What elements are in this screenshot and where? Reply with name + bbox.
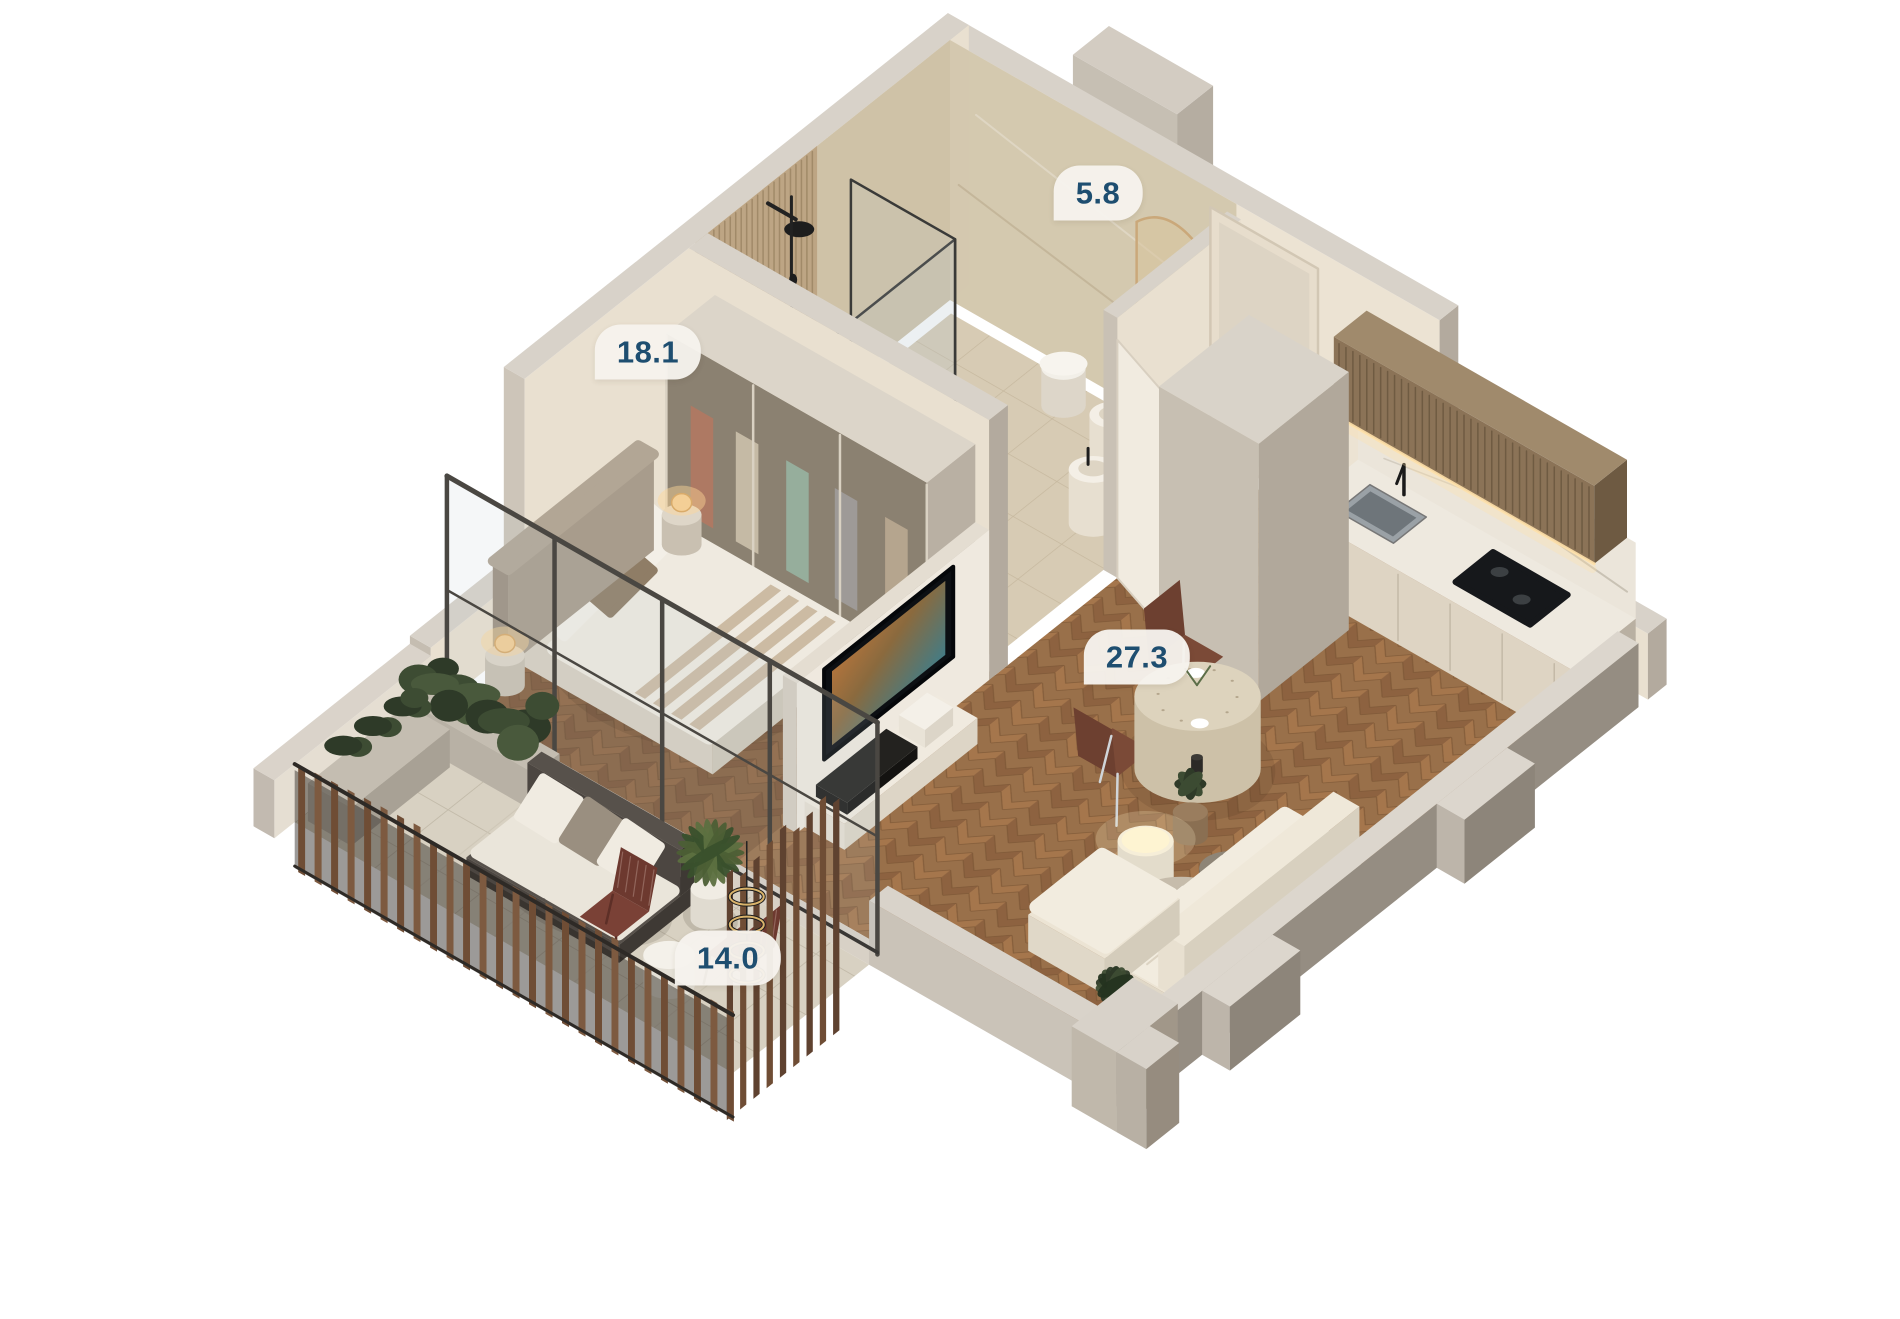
railing-slat bbox=[430, 844, 437, 952]
stone-speckle bbox=[1213, 669, 1216, 671]
area-label-bedroom: 18.1 bbox=[595, 325, 701, 380]
stone-speckle bbox=[1225, 711, 1228, 713]
corner-screen-slat bbox=[807, 812, 813, 1057]
burner bbox=[1513, 595, 1531, 605]
stone-speckle bbox=[1180, 720, 1183, 722]
railing-slat bbox=[397, 815, 404, 933]
railing-slat bbox=[546, 903, 553, 1018]
planter-foliage bbox=[324, 736, 362, 756]
corner-pillar-step-sw bbox=[1117, 1052, 1147, 1149]
railing-slat bbox=[727, 1008, 734, 1122]
vase-top bbox=[1191, 754, 1203, 760]
railing-slat bbox=[562, 911, 569, 1027]
glow-top bbox=[1122, 827, 1170, 853]
railing-slat bbox=[298, 764, 305, 876]
corner-screen-slat bbox=[793, 827, 799, 1067]
stone-speckle bbox=[1235, 696, 1238, 698]
railing-slat bbox=[381, 806, 388, 923]
railing-slat bbox=[364, 798, 371, 914]
corner-screen-slat bbox=[820, 796, 826, 1046]
burner bbox=[1491, 567, 1509, 577]
bath-sw-wall-se bbox=[989, 405, 1008, 680]
railing-slat bbox=[628, 957, 635, 1065]
railing-slat bbox=[315, 773, 322, 886]
corner-screen-slat bbox=[833, 798, 839, 1035]
area-label-terrace: 14.0 bbox=[675, 931, 781, 986]
plate bbox=[1191, 718, 1209, 728]
railing-slat bbox=[480, 869, 487, 980]
stone-speckle bbox=[1156, 693, 1159, 695]
corner-screen-slat bbox=[780, 825, 786, 1078]
corner-screen-slat bbox=[740, 872, 746, 1110]
railing-slat bbox=[694, 991, 701, 1103]
bath-se-wall-sw bbox=[1104, 310, 1118, 578]
floorplan-3d-svg bbox=[0, 0, 1900, 1319]
stone-speckle bbox=[1161, 709, 1164, 711]
planter-foliage bbox=[525, 692, 559, 720]
area-label-living: 27.3 bbox=[1084, 630, 1190, 685]
shower-head bbox=[784, 221, 814, 237]
railing-slat bbox=[529, 894, 536, 1008]
terrace-stub-wall-sw bbox=[254, 768, 275, 838]
railing-slat bbox=[496, 877, 503, 989]
railing-slat bbox=[661, 974, 668, 1084]
railing-slat bbox=[711, 999, 718, 1112]
floorplan-stage: 5.8 18.1 27.3 14.0 bbox=[0, 0, 1900, 1319]
area-label-bathroom: 5.8 bbox=[1054, 166, 1143, 221]
railing-slat bbox=[331, 781, 338, 895]
railing-slat bbox=[612, 937, 619, 1056]
railing-slat bbox=[447, 852, 454, 961]
stone-speckle bbox=[1231, 680, 1234, 682]
railing-slat bbox=[595, 928, 602, 1046]
railing-slat bbox=[463, 861, 470, 971]
railing-slat bbox=[579, 920, 586, 1037]
planter-foliage bbox=[430, 690, 468, 722]
drawing-root bbox=[254, 13, 1667, 1210]
lamp bbox=[672, 494, 692, 512]
planter-foliage bbox=[497, 725, 539, 761]
planter-foliage bbox=[400, 688, 428, 708]
railing-slat bbox=[513, 886, 520, 999]
toilet-seat bbox=[1040, 352, 1088, 376]
railing-slat bbox=[678, 982, 685, 1093]
railing-slat bbox=[348, 789, 355, 904]
railing-slat bbox=[414, 823, 421, 942]
railing-slat bbox=[645, 965, 652, 1074]
planter-foliage bbox=[354, 716, 392, 736]
